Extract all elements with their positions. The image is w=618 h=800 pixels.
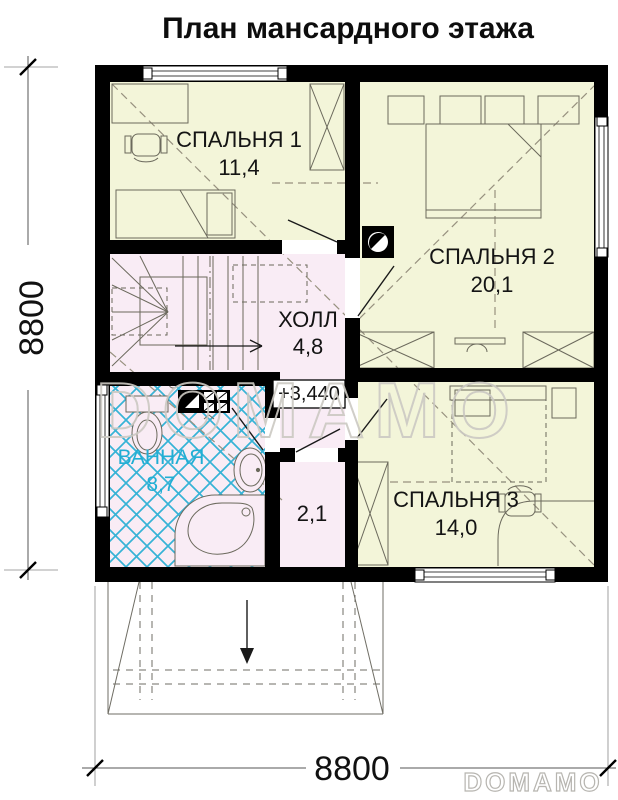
area-hall: 4,8 [293, 334, 324, 359]
area-closet: 2,1 [297, 501, 328, 526]
label-bedroom1: СПАЛЬНЯ 1 [176, 127, 302, 152]
door-opening-bedroom2 [345, 258, 360, 318]
area-bedroom3: 14,0 [435, 515, 478, 540]
ventilation-circle-icon [362, 226, 394, 258]
dimension-bottom-value: 8800 [314, 750, 390, 788]
room-bedroom2 [360, 82, 594, 368]
dimension-left-value: 8800 [13, 280, 51, 356]
watermark-corner-logo: DOMAMO [463, 767, 602, 797]
watermark-center: DOMAMO [96, 366, 520, 454]
label-bedroom3: СПАЛЬНЯ 3 [393, 487, 519, 512]
page-title: План мансардного этажа [162, 12, 534, 45]
sink [234, 448, 266, 492]
window-bedroom1 [143, 66, 287, 81]
door-opening-bedroom1 [282, 240, 337, 254]
floor-plan-canvas: План мансардного этажа [0, 0, 618, 800]
area-bedroom1: 11,4 [218, 155, 259, 180]
label-hall: ХОЛЛ [278, 307, 338, 332]
window-bedroom2 [595, 117, 608, 257]
label-bedroom2: СПАЛЬНЯ 2 [429, 244, 555, 269]
bathtub-corner [175, 495, 265, 566]
area-bedroom2: 20,1 [471, 272, 514, 297]
area-bathroom: 8,7 [146, 473, 175, 496]
window-bedroom3 [415, 568, 555, 582]
wall-bed1-bed2 [345, 82, 360, 382]
